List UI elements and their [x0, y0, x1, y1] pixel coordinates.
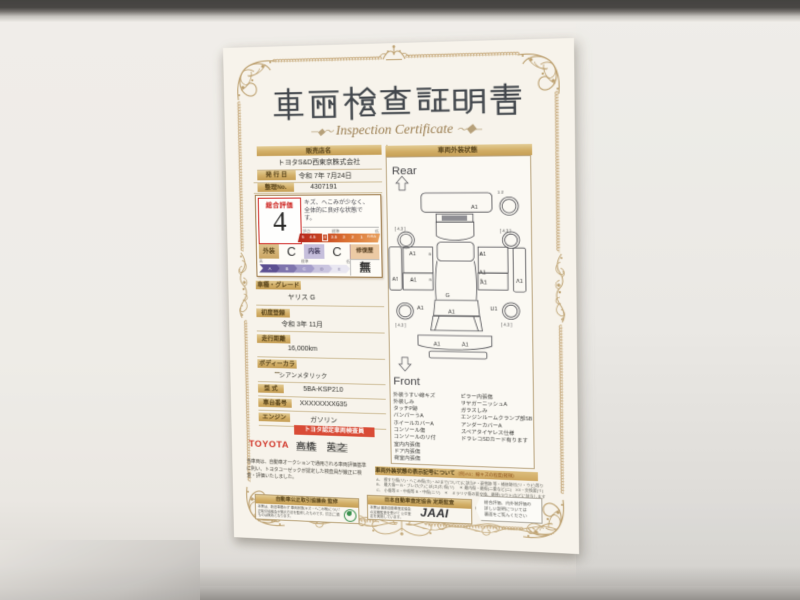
svg-text:A1: A1 — [410, 277, 417, 283]
svg-text:[ 4.3 ]: [ 4.3 ] — [395, 322, 406, 327]
svg-text:G: G — [445, 293, 449, 299]
svg-text:A1: A1 — [479, 251, 486, 257]
svg-text:1 2: 1 2 — [497, 189, 503, 194]
svg-text:A1: A1 — [434, 341, 441, 347]
svg-text:[ 4.3 ]: [ 4.3 ] — [395, 226, 406, 231]
svg-text:B: B — [429, 252, 432, 256]
svg-text:[ 4.3 ]: [ 4.3 ] — [501, 322, 512, 327]
svg-text:A1: A1 — [480, 280, 487, 286]
svg-text:[ 4.3 ]: [ 4.3 ] — [500, 228, 511, 233]
svg-text:A1: A1 — [409, 251, 416, 257]
svg-text:A1: A1 — [479, 270, 486, 276]
svg-text:A1: A1 — [516, 279, 523, 285]
svg-text:Front: Front — [393, 375, 420, 388]
svg-text:A1: A1 — [417, 305, 424, 311]
svg-text:U1: U1 — [490, 306, 497, 312]
svg-text:A1: A1 — [462, 342, 469, 348]
svg-text:A1: A1 — [471, 205, 478, 211]
svg-text:A1: A1 — [392, 277, 399, 283]
svg-text:A1: A1 — [448, 309, 455, 315]
svg-text:B: B — [429, 278, 432, 282]
svg-text:Rear: Rear — [392, 165, 417, 178]
